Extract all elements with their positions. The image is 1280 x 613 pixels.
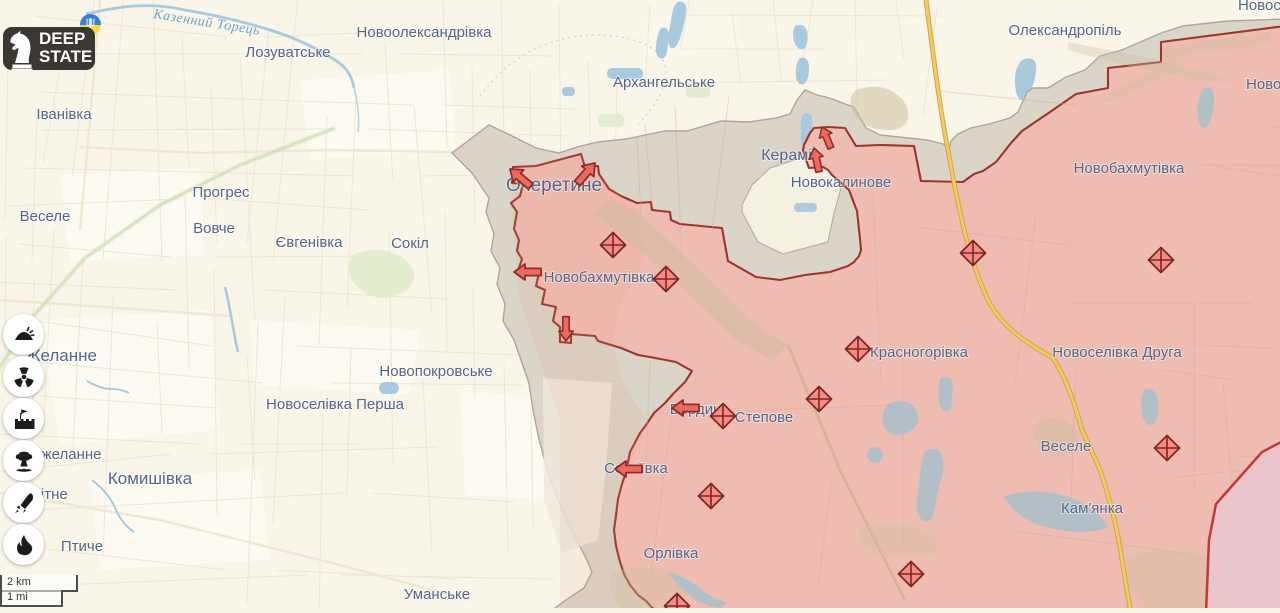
- svg-text:Іванівка: Іванівка: [36, 106, 92, 123]
- svg-text:Веселе: Веселе: [1041, 438, 1092, 455]
- svg-text:Новоселівка: Новоселівка: [1246, 76, 1280, 93]
- svg-text:Степове: Степове: [735, 409, 793, 426]
- svg-text:Сокіл: Сокіл: [391, 235, 429, 252]
- svg-text:Олександропіль: Олександропіль: [1009, 22, 1122, 39]
- svg-text:Новоолександрівка: Новоолександрівка: [357, 24, 493, 41]
- svg-text:Уманське: Уманське: [404, 586, 470, 603]
- svg-text:Новоселівка Перша: Новоселівка Перша: [266, 396, 405, 413]
- svg-text:Новобахмутівка: Новобахмутівка: [544, 269, 655, 286]
- svg-text:Веселе: Веселе: [20, 208, 71, 225]
- svg-text:Новопокровське: Новопокровське: [379, 363, 492, 380]
- svg-text:Птиче: Птиче: [61, 538, 103, 555]
- svg-text:Євгенівка: Євгенівка: [275, 234, 343, 251]
- svg-text:Новокалинове: Новокалинове: [791, 174, 891, 191]
- svg-text:Красногорівка: Красногорівка: [870, 344, 969, 361]
- svg-text:Новобахмутівка: Новобахмутівка: [1074, 160, 1185, 177]
- svg-text:Лозуватське: Лозуватське: [245, 44, 330, 61]
- svg-text:Кам'янка: Кам'янка: [1061, 500, 1124, 517]
- svg-text:Орлівка: Орлівка: [644, 545, 699, 562]
- svg-text:Новоселівка: Новоселівка: [1238, 0, 1280, 14]
- svg-text:Комишівка: Комишівка: [108, 469, 193, 488]
- svg-text:Вовче: Вовче: [193, 220, 235, 237]
- svg-text:Архангельське: Архангельське: [613, 74, 715, 91]
- svg-text:Новоселівка Друга: Новоселівка Друга: [1052, 344, 1182, 361]
- svg-text:Прогрес: Прогрес: [192, 184, 250, 201]
